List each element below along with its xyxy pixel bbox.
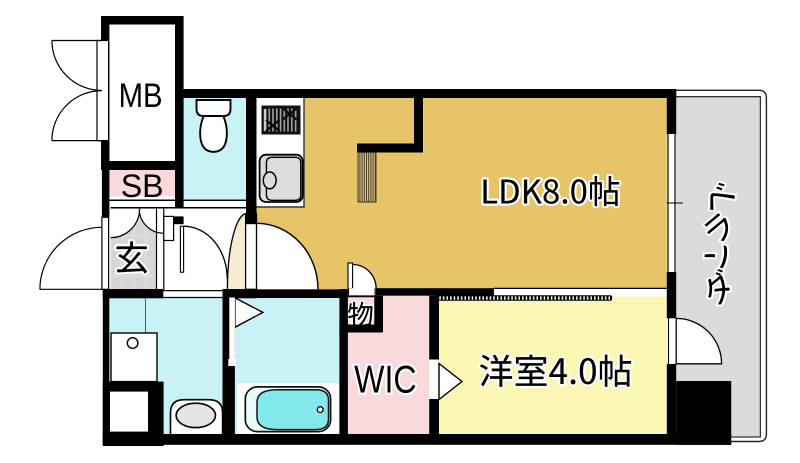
svg-text:WIC: WIC bbox=[354, 359, 417, 402]
svg-text:MB: MB bbox=[119, 77, 163, 115]
svg-text:SB: SB bbox=[121, 168, 164, 204]
